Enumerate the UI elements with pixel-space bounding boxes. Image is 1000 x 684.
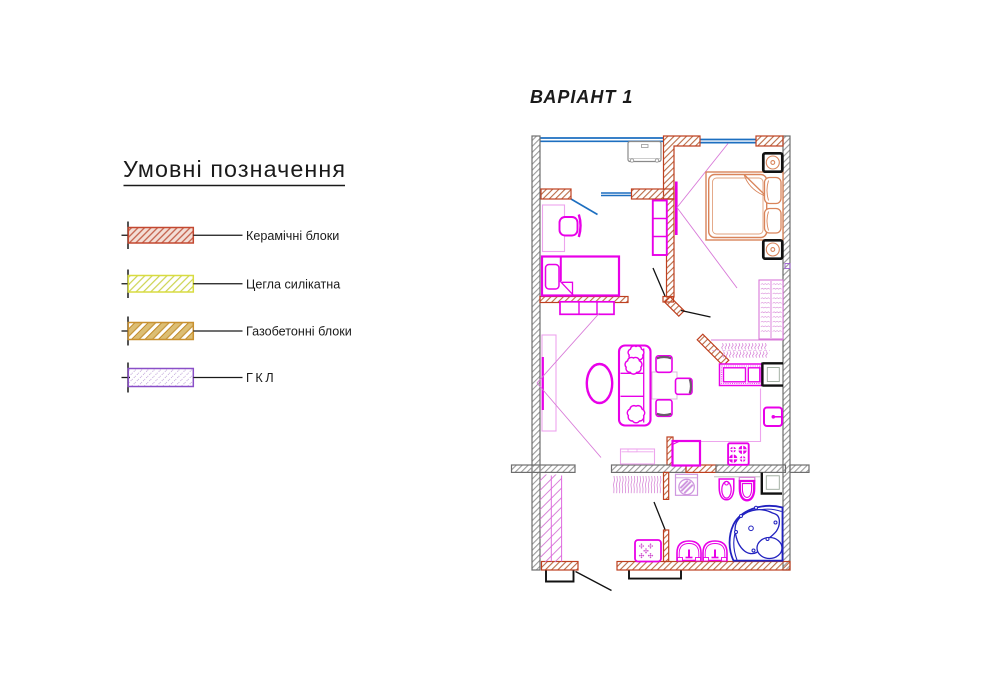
svg-text:Газобетонні блоки: Газобетонні блоки [246,325,352,339]
svg-text:ГКЛ: ГКЛ [246,371,276,385]
svg-text:ВАРІАНТ 1: ВАРІАНТ 1 [530,87,633,107]
svg-text:Умовні позначення: Умовні позначення [123,156,346,182]
svg-text:Цегла силікатна: Цегла силікатна [246,277,340,291]
svg-text:Керамічні блоки: Керамічні блоки [246,229,339,243]
